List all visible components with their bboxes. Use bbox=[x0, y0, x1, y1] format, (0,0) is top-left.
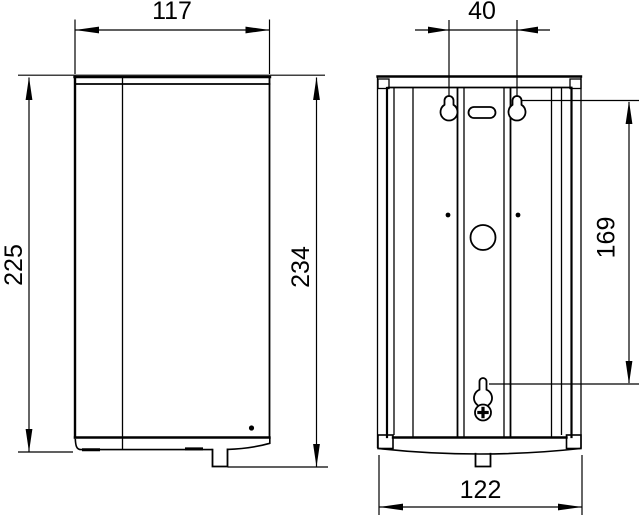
dimension-rear-width: 122 bbox=[379, 455, 582, 515]
mounting-keyhole-bottom bbox=[474, 378, 492, 407]
arrowhead-up bbox=[313, 77, 320, 100]
front-sensor-dot bbox=[249, 425, 254, 430]
dimension-drawing: 117 40 225 234 169 bbox=[0, 0, 640, 518]
arrowhead-right bbox=[558, 504, 582, 511]
rear-small-hole-right bbox=[516, 213, 521, 218]
arrowhead-down bbox=[313, 444, 320, 467]
dimension-total-height: 234 bbox=[228, 77, 329, 467]
arrowhead-right bbox=[246, 27, 270, 34]
arrowhead-right bbox=[517, 27, 538, 34]
mounting-slot-oval bbox=[469, 107, 496, 118]
dimension-label: 169 bbox=[593, 217, 621, 259]
front-spout bbox=[213, 449, 228, 466]
rear-view bbox=[378, 77, 582, 467]
rear-center-hole bbox=[471, 225, 496, 250]
rear-corner-bracket-bottom-left bbox=[378, 435, 393, 449]
arrowhead-up bbox=[626, 101, 633, 124]
dimension-label: 40 bbox=[468, 0, 496, 25]
dimension-label: 117 bbox=[152, 0, 192, 25]
technical-drawing-canvas: 117 40 225 234 169 bbox=[0, 0, 640, 518]
arrowhead-down bbox=[626, 361, 633, 384]
arrowhead-left bbox=[428, 27, 449, 34]
arrowhead-up bbox=[26, 77, 33, 100]
front-bottom-cap-right bbox=[228, 438, 270, 450]
dimension-hole-spacing: 40 bbox=[415, 0, 550, 97]
arrowhead-down bbox=[26, 429, 33, 452]
arrowhead-left bbox=[75, 27, 99, 34]
arrowhead-left bbox=[379, 504, 403, 511]
dimension-front-width: 117 bbox=[75, 0, 270, 74]
front-view bbox=[75, 77, 271, 467]
mounting-keyhole-top-left bbox=[440, 96, 457, 121]
dimension-body-height: 225 bbox=[0, 75, 325, 452]
dimension-label: 122 bbox=[460, 476, 502, 504]
dimension-label: 225 bbox=[0, 244, 28, 286]
dimension-hole-vertical: 169 bbox=[489, 101, 639, 385]
dimension-label: 234 bbox=[287, 246, 315, 288]
screw-icon bbox=[475, 405, 491, 421]
rear-corner-bracket-bottom-right bbox=[567, 435, 582, 449]
rear-bottom-curve bbox=[379, 449, 581, 455]
rear-small-hole-left bbox=[446, 213, 451, 218]
rear-spout bbox=[476, 454, 491, 467]
